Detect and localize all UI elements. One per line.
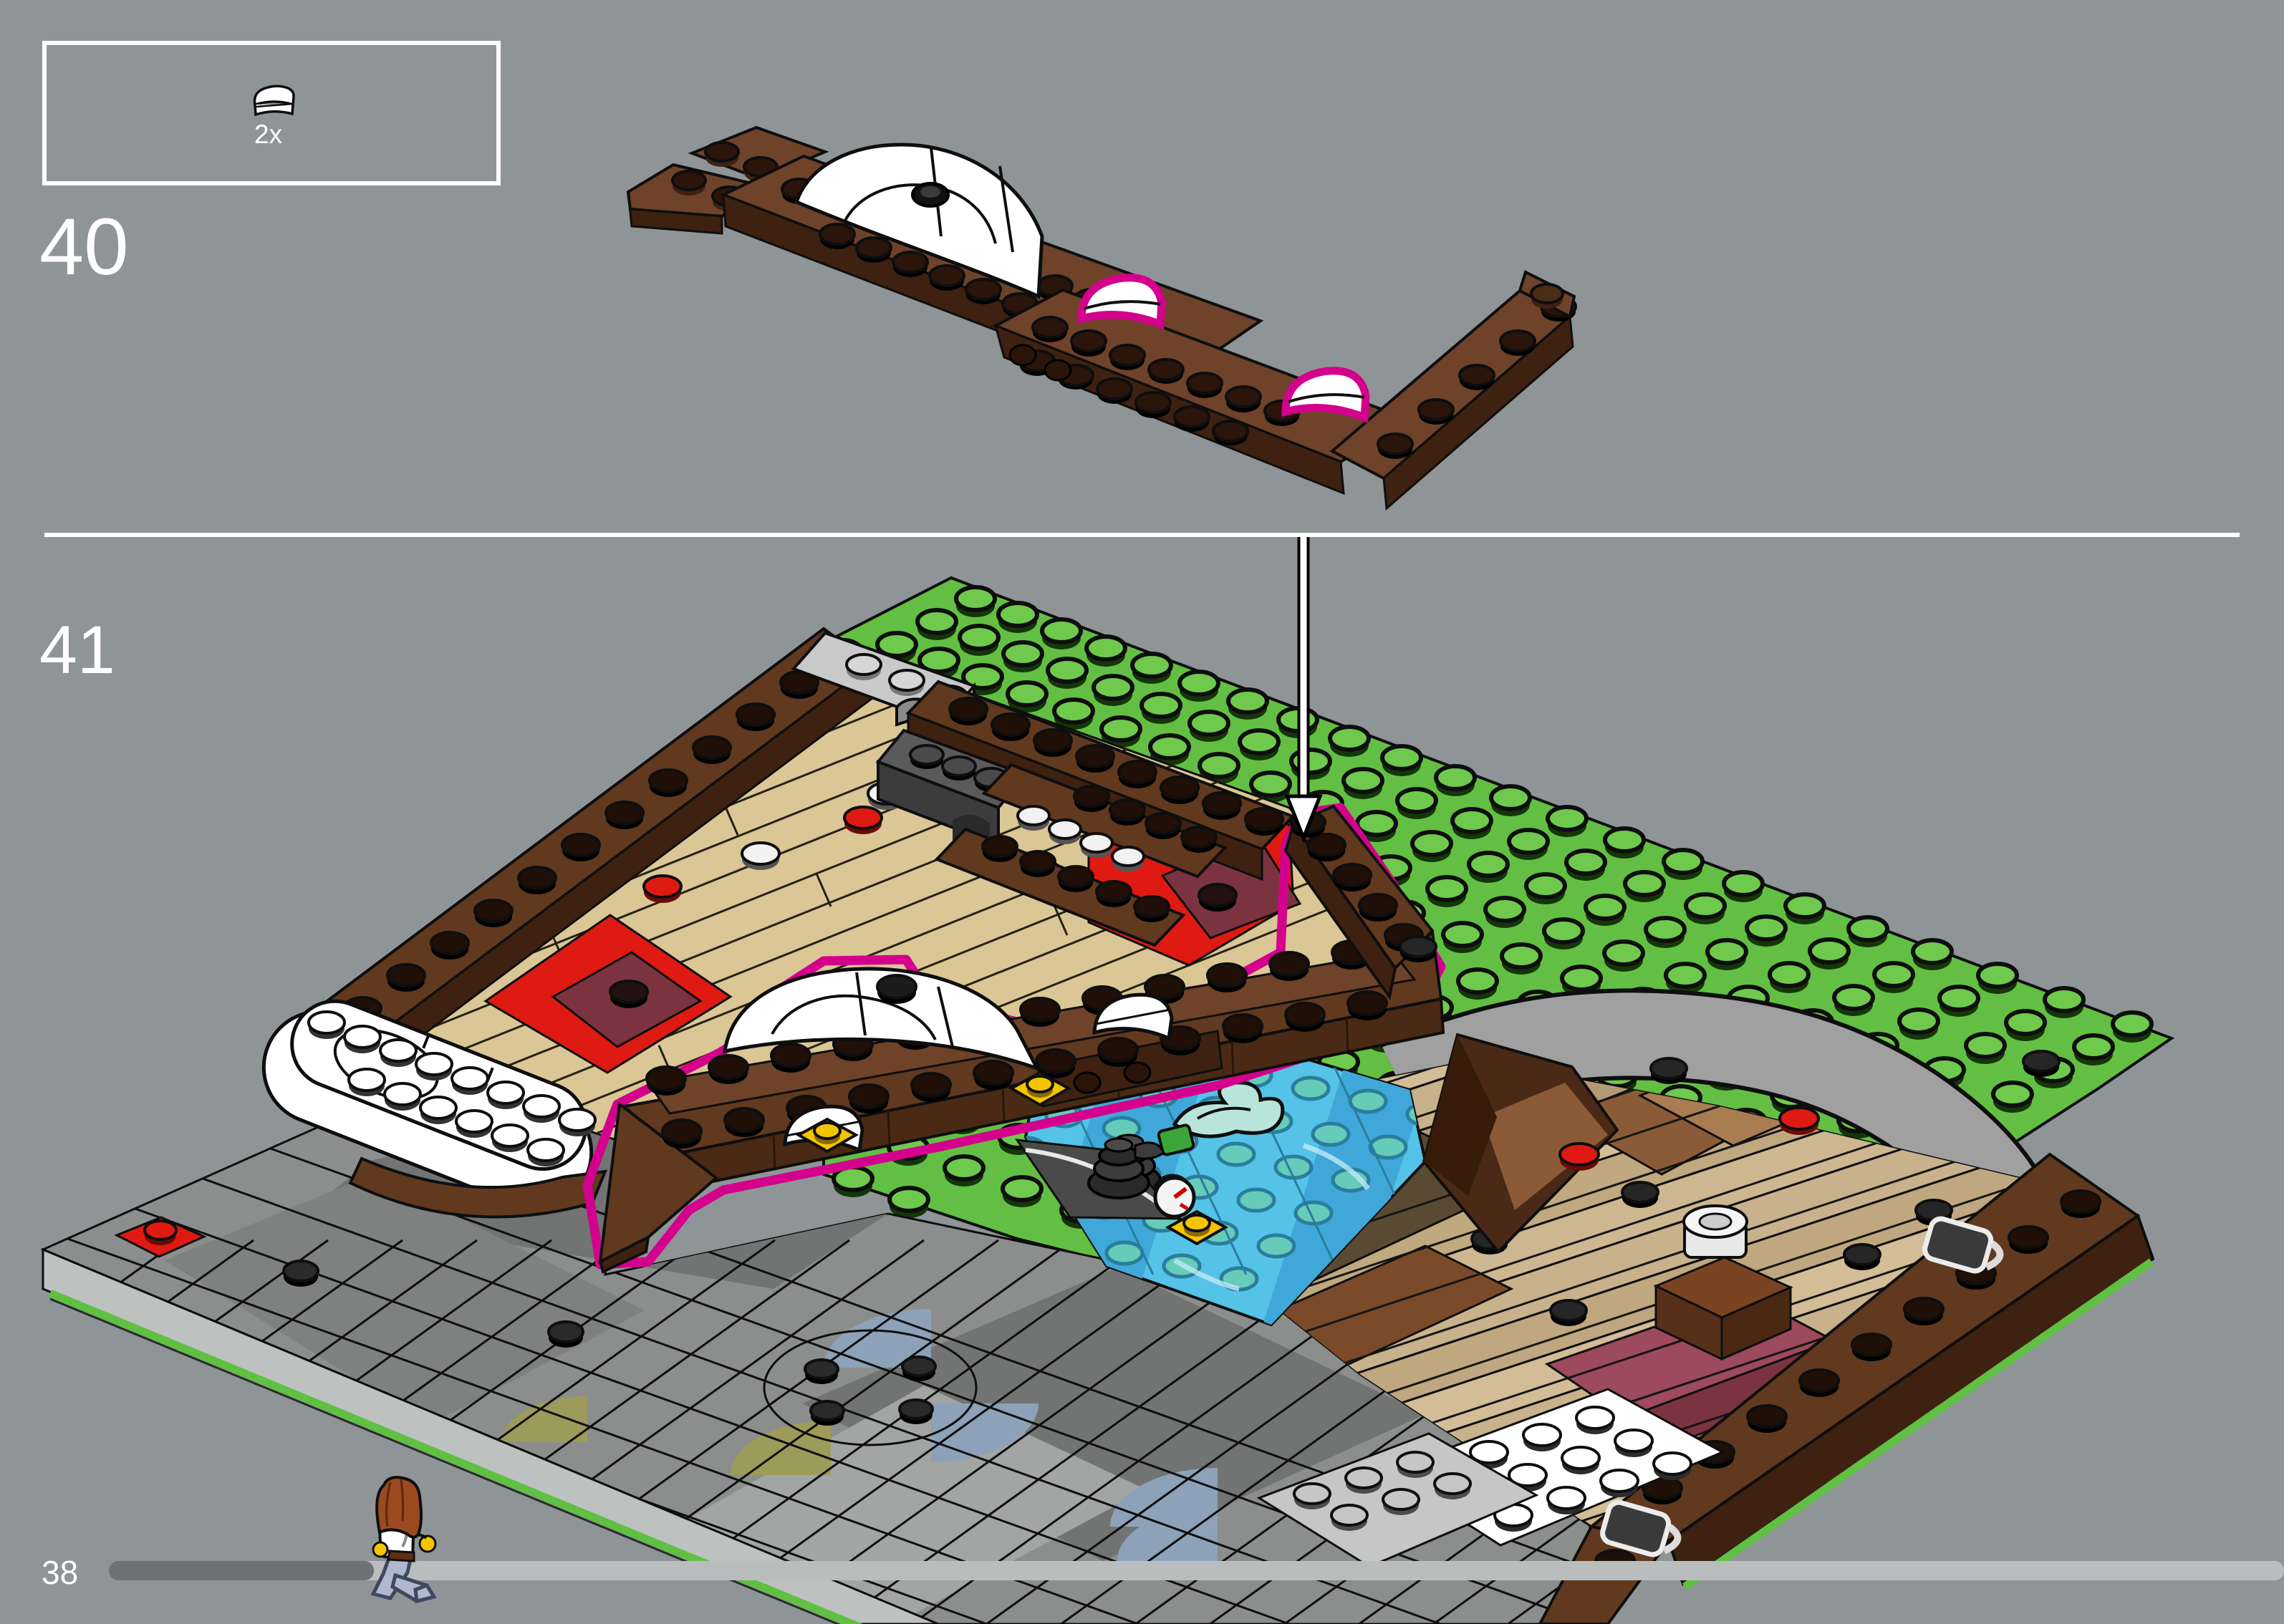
- svg-text:40: 40: [39, 202, 129, 291]
- svg-text:2x: 2x: [254, 120, 283, 149]
- svg-text:38: 38: [42, 1554, 78, 1591]
- svg-text:41: 41: [39, 612, 115, 688]
